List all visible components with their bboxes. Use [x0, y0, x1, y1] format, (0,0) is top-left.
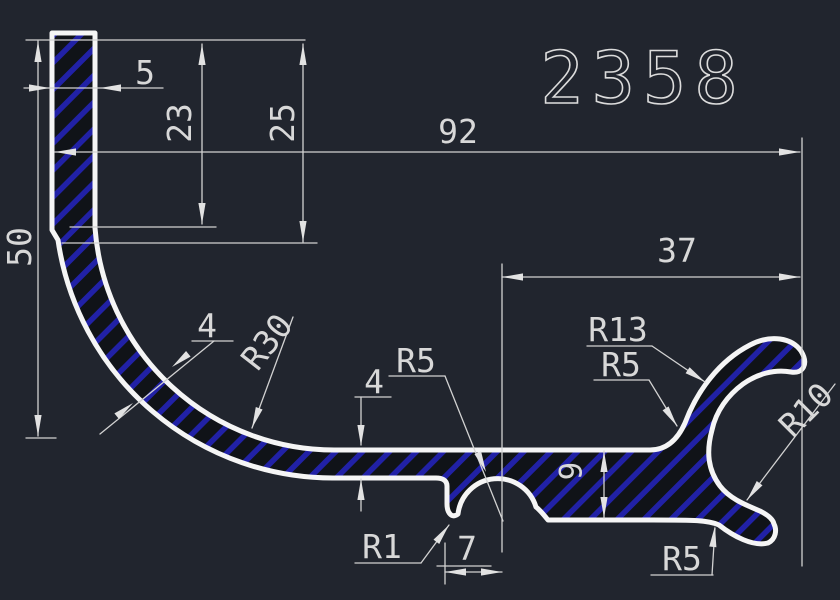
dim-label: 23 — [160, 103, 199, 143]
dim-label: R5 — [601, 345, 641, 384]
dim-label: R1 — [362, 527, 402, 566]
dim-label: 7 — [457, 529, 477, 568]
dim-label: 4 — [364, 362, 384, 401]
dim-label: 5 — [135, 53, 155, 92]
dim-label: R5 — [396, 341, 436, 380]
dim-label: 37 — [657, 231, 697, 270]
dim-label: 4 — [197, 306, 217, 345]
dim-label: 50 — [0, 227, 39, 267]
dim-label: 25 — [263, 103, 302, 143]
dim-label: 9 — [554, 462, 590, 481]
dim-label: R13 — [588, 310, 648, 349]
drawing-number: 2358 — [540, 36, 745, 120]
dim-label: R5 — [662, 539, 702, 578]
cad-viewport[interactable]: 50 5 23 25 92 37 4 — [0, 0, 840, 600]
dim-label: 92 — [438, 112, 478, 151]
